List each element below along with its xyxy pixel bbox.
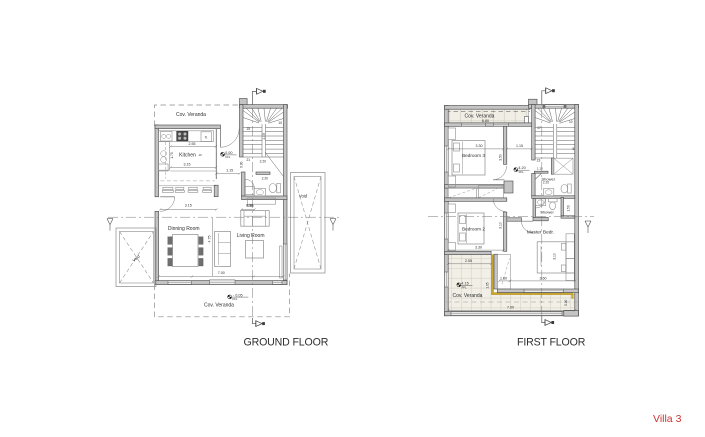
svg-text:Kitchen: Kitchen xyxy=(179,152,196,158)
svg-text:10: 10 xyxy=(569,120,573,124)
svg-text:Cov. Veranda: Cov. Veranda xyxy=(176,112,206,118)
svg-text:Shower: Shower xyxy=(540,210,554,215)
svg-text:FFL: FFL xyxy=(519,170,525,174)
svg-text:Void: Void xyxy=(299,193,308,198)
svg-text:15: 15 xyxy=(246,127,250,131)
svg-text:1.80: 1.80 xyxy=(262,133,266,140)
svg-text:FIRST FLOOR: FIRST FLOOR xyxy=(517,337,586,349)
svg-text:1.15: 1.15 xyxy=(226,168,233,172)
svg-text:1.05: 1.05 xyxy=(486,282,490,288)
svg-text:0.90: 0.90 xyxy=(564,299,568,305)
svg-text:Bedroom 2: Bedroom 2 xyxy=(462,226,485,231)
svg-text:FFL: FFL xyxy=(232,297,238,301)
svg-text:23: 23 xyxy=(537,159,541,163)
svg-text:1.15: 1.15 xyxy=(537,166,543,170)
svg-text:1.15: 1.15 xyxy=(516,144,523,148)
svg-text:1.70: 1.70 xyxy=(170,152,174,158)
svg-text:Villa 3: Villa 3 xyxy=(653,413,682,425)
svg-text:2.20: 2.20 xyxy=(260,159,267,163)
svg-text:fr.: fr. xyxy=(205,136,208,140)
svg-text:1.50: 1.50 xyxy=(567,205,571,211)
svg-text:3.10: 3.10 xyxy=(499,222,503,229)
svg-text:2.55: 2.55 xyxy=(189,142,196,146)
svg-text:FFL: FFL xyxy=(225,155,231,159)
svg-text:Cov. Veranda: Cov. Veranda xyxy=(204,303,234,309)
svg-text:Dinning Room: Dinning Room xyxy=(168,226,200,232)
svg-text:GROUND FLOOR: GROUND FLOOR xyxy=(244,337,329,349)
svg-text:3.15: 3.15 xyxy=(185,204,192,208)
svg-text:17: 17 xyxy=(537,126,541,130)
svg-text:3.50: 3.50 xyxy=(499,154,503,161)
svg-text:2.20: 2.20 xyxy=(262,177,269,181)
svg-text:FFL: FFL xyxy=(462,285,468,289)
svg-text:0.90: 0.90 xyxy=(239,161,243,168)
svg-text:1.60: 1.60 xyxy=(500,276,507,280)
svg-text:7.00: 7.00 xyxy=(218,271,225,275)
svg-text:6.80: 6.80 xyxy=(482,119,489,123)
svg-text:Cov. Veranda: Cov. Veranda xyxy=(465,113,495,119)
svg-text:Bedroom 3: Bedroom 3 xyxy=(462,153,485,158)
svg-text:10: 10 xyxy=(278,121,282,125)
svg-text:Master Bedr.: Master Bedr. xyxy=(527,230,554,236)
svg-text:3.30: 3.30 xyxy=(475,246,482,250)
svg-text:2.20: 2.20 xyxy=(543,181,549,185)
svg-text:7.00: 7.00 xyxy=(507,305,514,309)
svg-text:2.55: 2.55 xyxy=(465,259,472,263)
svg-text:0.90: 0.90 xyxy=(246,204,253,208)
svg-text:3.10: 3.10 xyxy=(553,253,557,260)
svg-text:4.75: 4.75 xyxy=(208,236,212,243)
svg-text:Living Room: Living Room xyxy=(237,233,265,239)
svg-text:21: 21 xyxy=(246,158,250,162)
svg-text:10: 10 xyxy=(199,153,203,157)
svg-text:3.30: 3.30 xyxy=(476,144,483,148)
svg-text:3.60: 3.60 xyxy=(540,276,547,280)
svg-text:3.15: 3.15 xyxy=(184,163,191,167)
svg-text:5: 5 xyxy=(572,147,574,151)
svg-text:Cov. Veranda: Cov. Veranda xyxy=(453,293,483,299)
